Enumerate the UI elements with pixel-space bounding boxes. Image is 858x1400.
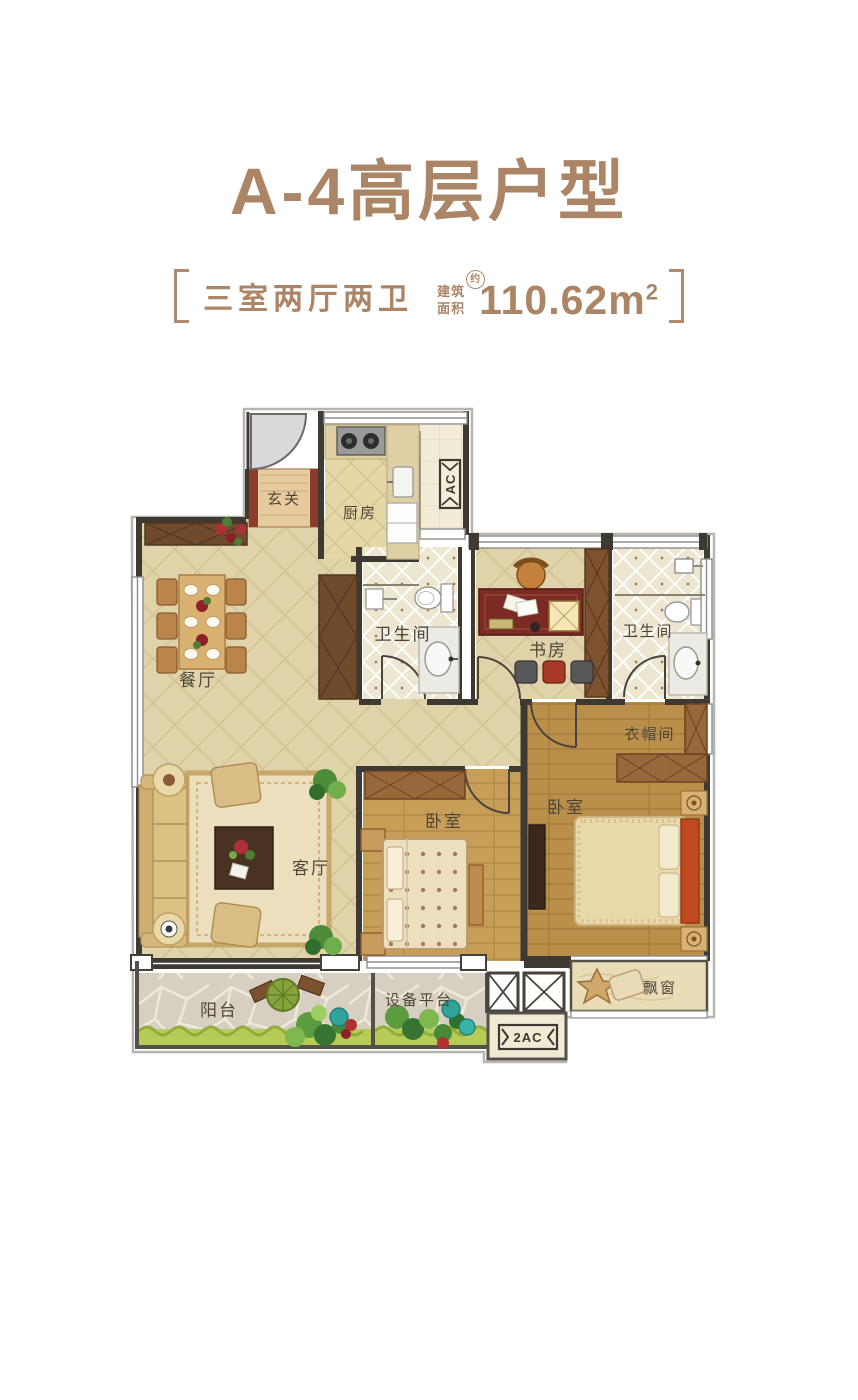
office-chair-icon (517, 561, 545, 589)
nightstand-icon (361, 829, 385, 851)
approx-badge: 约 (466, 270, 485, 289)
hall-cabinet (319, 575, 357, 699)
page-title: A-4高层户型 (0, 138, 858, 234)
area-label-top: 建筑 (437, 284, 465, 301)
floor-plan: 2AC AC (126, 392, 728, 1081)
header: A-4高层户型 三室两厅两卫 建筑 面积 约 110.62m2 (0, 0, 858, 324)
layout-type: 三室两厅两卫 (203, 274, 413, 318)
room-label-kitchen: 厨房 (343, 505, 377, 522)
ac-shaft-label: AC (443, 474, 458, 495)
room-label-dining: 餐厅 (179, 671, 217, 690)
sink-icon (393, 467, 413, 497)
dining-furniture (145, 517, 247, 673)
room-label-bay-window: 飘窗 (643, 979, 677, 997)
room-label-equipment: 设备平台 (385, 992, 453, 1009)
ac-shafts: 2AC (488, 973, 566, 1059)
room-label-living: 客厅 (292, 859, 330, 878)
area-block: 建筑 面积 约 110.62m2 (437, 277, 659, 324)
tv-console-icon (529, 825, 545, 909)
room-label-study: 书房 (529, 641, 567, 660)
stool-icon (543, 661, 565, 683)
wardrobe-icon (365, 771, 465, 799)
area-label: 建筑 面积 约 (437, 284, 465, 318)
ac2-shaft-label: 2AC (513, 1030, 542, 1045)
stool-icon (515, 661, 537, 683)
wardrobe-icon (617, 754, 707, 782)
toilet-icon (665, 602, 689, 622)
bench-icon (469, 865, 483, 925)
armchair-icon (210, 762, 261, 808)
ac-niche: AC (440, 460, 460, 508)
bay-window (571, 961, 707, 1018)
area-value: 110.62m2 (479, 277, 659, 324)
coffee-table-icon (215, 827, 273, 889)
shower-icon (675, 559, 693, 573)
toilet-icon (415, 587, 441, 609)
armchair-icon (210, 902, 261, 948)
area-superscript: 2 (646, 279, 659, 304)
stool-icon (571, 661, 593, 683)
area-label-bottom: 面积 (437, 301, 465, 318)
floor-plan-svg: 2AC AC (126, 392, 728, 1076)
entry-door-icon (251, 414, 306, 469)
left-bracket-icon (174, 269, 189, 323)
room-label-bedroom-master: 卧室 (547, 798, 585, 817)
right-bracket-icon (669, 269, 684, 323)
room-label-foyer: 玄关 (267, 491, 301, 508)
room-label-bedroom-mid: 卧室 (425, 812, 463, 831)
room-label-bath-master: 卫生间 (622, 623, 673, 640)
room-label-balcony: 阳台 (200, 1001, 238, 1020)
room-label-bath-main: 卫生间 (375, 625, 432, 644)
subtitle-row: 三室两厅两卫 建筑 面积 约 110.62m2 (0, 268, 858, 324)
room-label-cloakroom: 衣帽间 (624, 726, 675, 743)
nightstand-icon (361, 933, 385, 955)
